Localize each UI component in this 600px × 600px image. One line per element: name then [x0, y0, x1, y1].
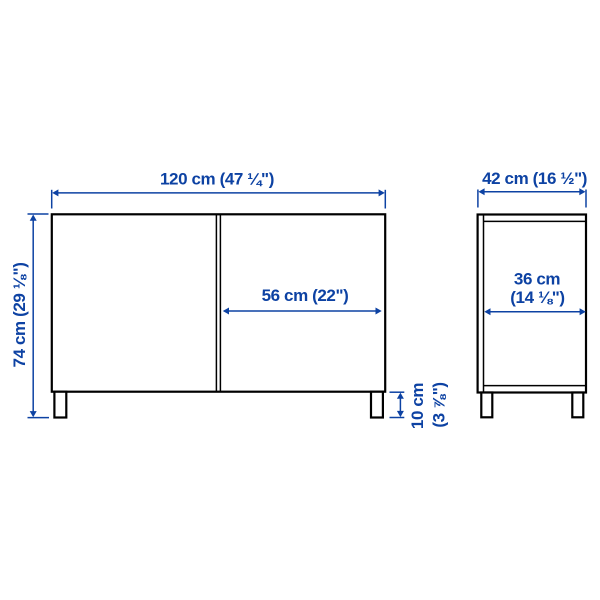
- svg-text:36 cm: 36 cm: [514, 270, 560, 289]
- svg-text:(3 ⅞"): (3 ⅞"): [430, 382, 449, 427]
- svg-text:120 cm (47 ¼"): 120 cm (47 ¼"): [160, 170, 274, 189]
- svg-text:10 cm: 10 cm: [408, 383, 427, 429]
- svg-text:42 cm (16 ½"): 42 cm (16 ½"): [482, 169, 587, 188]
- svg-text:56 cm (22"): 56 cm (22"): [262, 286, 349, 305]
- svg-text:74 cm (29 ⅛"): 74 cm (29 ⅛"): [10, 263, 29, 368]
- svg-text:(14 ⅛"): (14 ⅛"): [510, 288, 564, 307]
